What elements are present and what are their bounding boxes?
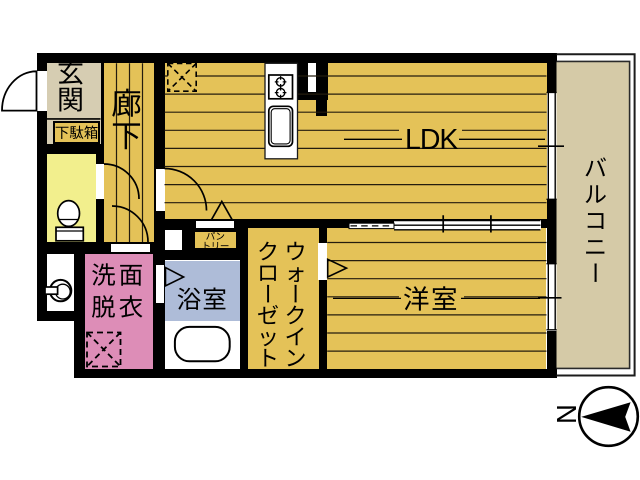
svg-text:N: N — [551, 404, 582, 424]
svg-text:LDK: LDK — [405, 124, 458, 156]
